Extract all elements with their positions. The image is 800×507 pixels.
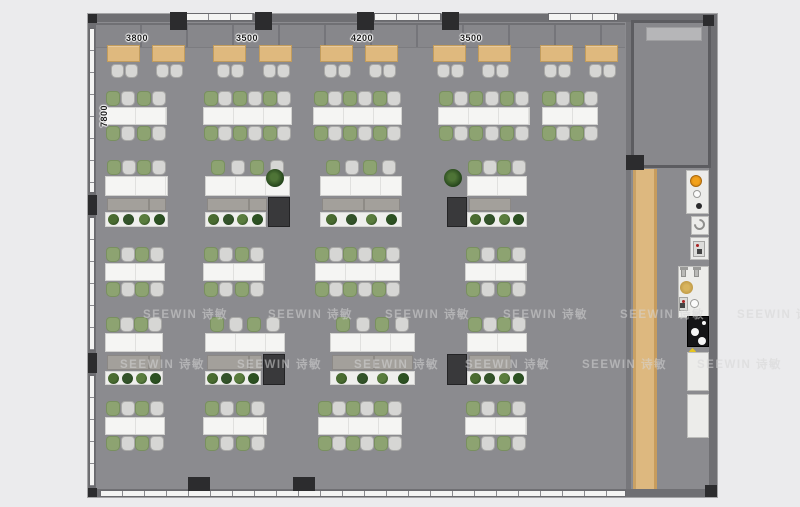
watermark-text: SEEWIN 诗敏 — [268, 306, 353, 322]
watermark-text: SEEWIN 诗敏 — [697, 356, 782, 372]
floorplan-canvas: 38003500420035007800 SEEWIN 诗敏SEEWIN 诗敏S… — [0, 0, 800, 507]
watermark-text: SEEWIN 诗敏 — [582, 356, 667, 372]
watermark-text: SEEWIN 诗敏 — [503, 306, 588, 322]
watermark-text: SEEWIN 诗敏 — [385, 306, 470, 322]
watermark-text: SEEWIN 诗敏 — [237, 356, 322, 372]
watermark-text: SEEWIN 诗敏 — [354, 356, 439, 372]
watermark-layer: SEEWIN 诗敏SEEWIN 诗敏SEEWIN 诗敏SEEWIN 诗敏SEEW… — [0, 0, 800, 507]
watermark-text: SEEWIN 诗敏 — [737, 306, 800, 322]
watermark-text: SEEWIN 诗敏 — [143, 306, 228, 322]
watermark-text: SEEWIN 诗敏 — [620, 306, 705, 322]
watermark-text: SEEWIN 诗敏 — [120, 356, 205, 372]
watermark-text: SEEWIN 诗敏 — [465, 356, 550, 372]
